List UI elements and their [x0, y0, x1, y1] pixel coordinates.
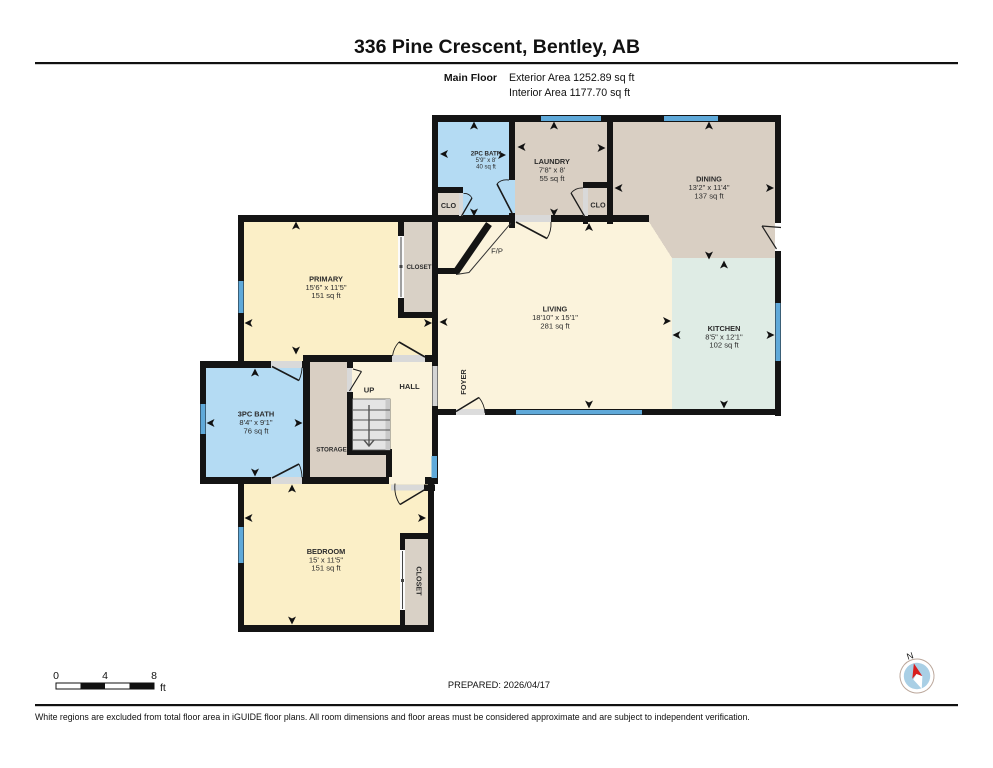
svg-text:0: 0: [53, 670, 59, 682]
svg-text:White regions are excluded fro: White regions are excluded from total fl…: [35, 712, 750, 722]
svg-text:STORAGE: STORAGE: [316, 447, 346, 454]
svg-text:PREPARED: 2026/04/17: PREPARED: 2026/04/17: [448, 680, 550, 690]
svg-text:CLOSET: CLOSET: [415, 566, 424, 596]
svg-text:4: 4: [102, 670, 108, 682]
svg-text:5'9" x 8': 5'9" x 8': [476, 158, 497, 164]
svg-text:8: 8: [151, 670, 157, 682]
svg-text:UP: UP: [364, 386, 375, 395]
svg-text:FOYER: FOYER: [459, 369, 468, 395]
svg-text:151 sq ft: 151 sq ft: [311, 564, 341, 573]
svg-text:CLO: CLO: [441, 201, 457, 210]
svg-text:151 sq ft: 151 sq ft: [311, 291, 341, 300]
svg-text:76 sq ft: 76 sq ft: [244, 427, 270, 436]
svg-text:ft: ft: [160, 682, 166, 694]
svg-text:Interior Area 1177.70 sq ft: Interior Area 1177.70 sq ft: [509, 87, 630, 99]
svg-text:281 sq ft: 281 sq ft: [540, 322, 570, 331]
svg-text:40 sq ft: 40 sq ft: [476, 164, 496, 170]
svg-text:2PC BATH: 2PC BATH: [471, 151, 502, 158]
svg-text:CLOSET: CLOSET: [406, 264, 431, 271]
svg-text:F/P: F/P: [491, 247, 503, 256]
svg-text:Main Floor: Main Floor: [444, 72, 497, 84]
svg-text:HALL: HALL: [399, 382, 420, 391]
svg-text:CLO: CLO: [590, 201, 606, 210]
svg-text:102 sq ft: 102 sq ft: [709, 340, 739, 349]
svg-text:Exterior Area 1252.89 sq ft: Exterior Area 1252.89 sq ft: [509, 72, 634, 84]
svg-text:336 Pine Crescent, Bentley, AB: 336 Pine Crescent, Bentley, AB: [354, 36, 640, 58]
svg-text:137 sq ft: 137 sq ft: [694, 192, 724, 201]
svg-text:55 sq ft: 55 sq ft: [540, 174, 566, 183]
